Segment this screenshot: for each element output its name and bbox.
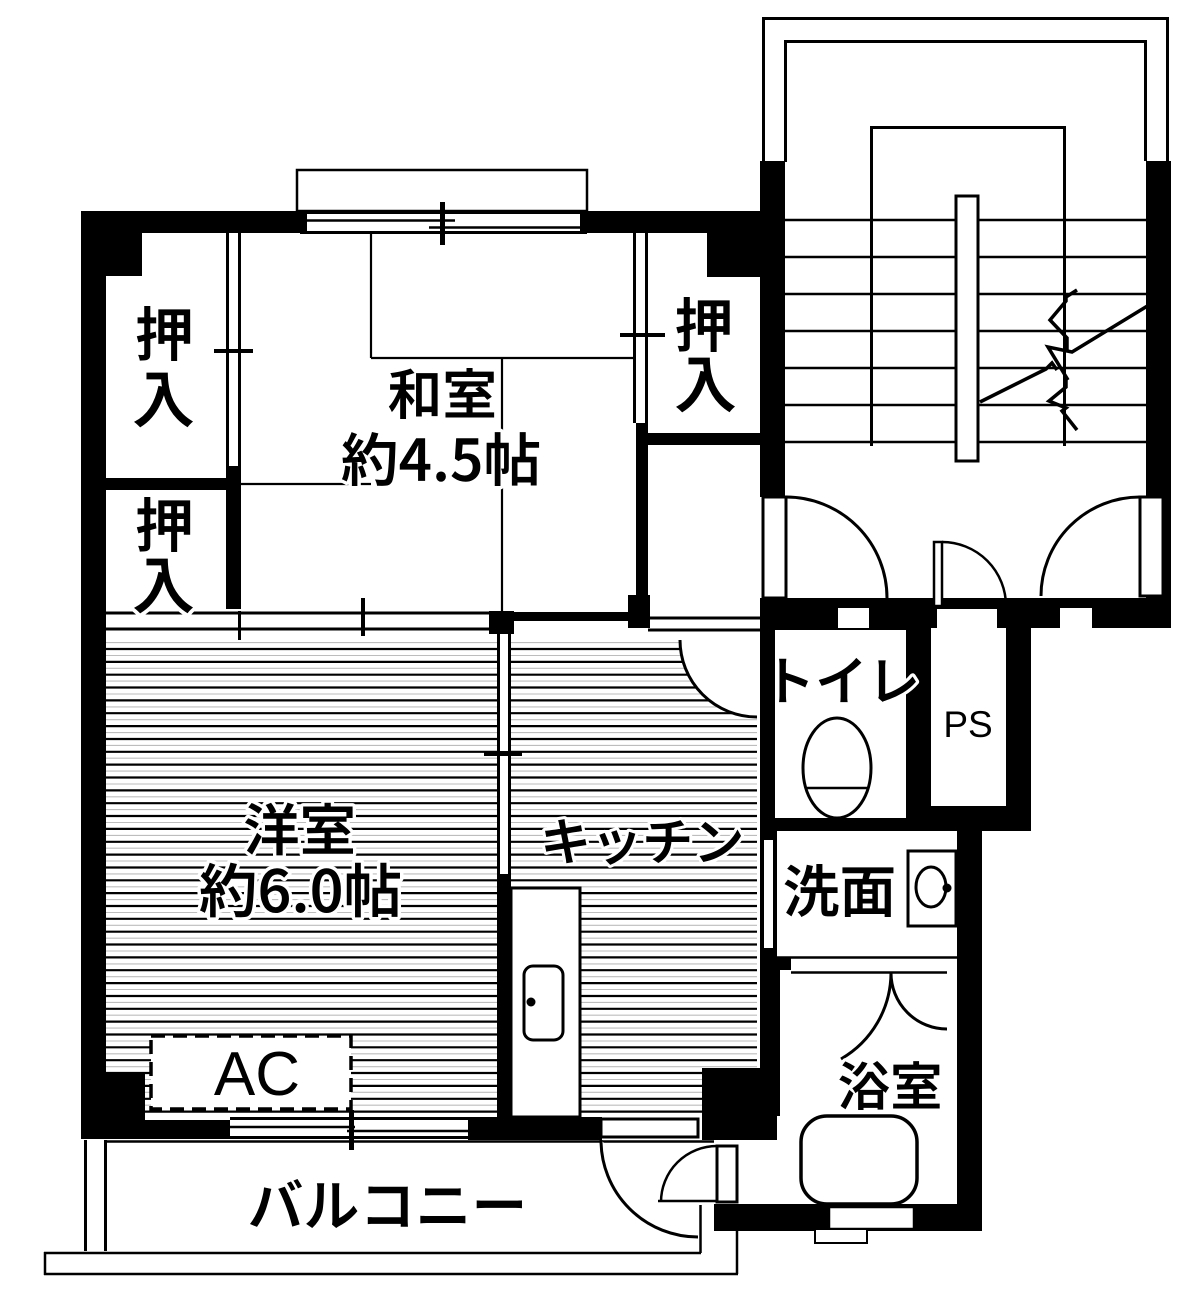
svg-text:PS: PS [943, 704, 992, 745]
svg-text:AC: AC [214, 1040, 300, 1109]
